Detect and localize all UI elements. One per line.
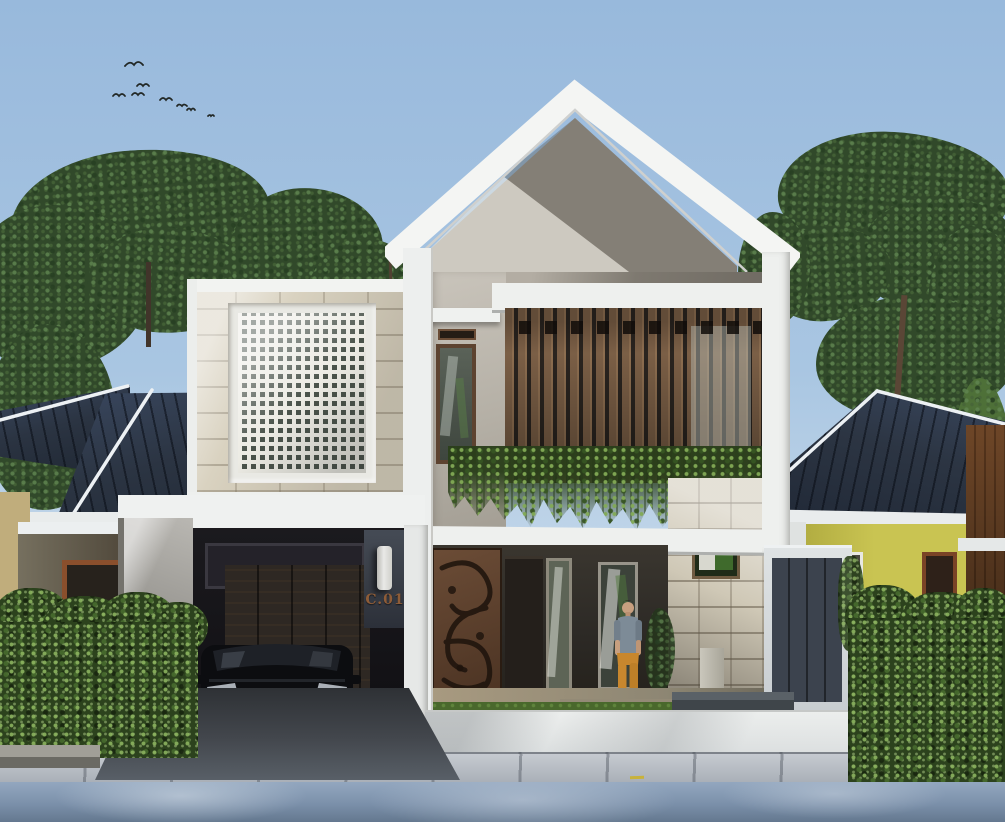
breeze-panel-light <box>238 313 366 473</box>
window-reflection <box>547 567 563 677</box>
address-pillar: C.01 <box>364 530 406 628</box>
transom-vent <box>438 329 476 340</box>
niche-leaf-detail <box>715 554 733 570</box>
hedge-right <box>848 618 1005 782</box>
breeze-box-left-edge <box>187 279 197 508</box>
slat-top-rail <box>505 321 768 334</box>
door-sidelight <box>546 558 572 706</box>
window-reflection <box>440 356 458 437</box>
hedge-curb-front <box>0 757 100 768</box>
breeze-box-cap <box>187 279 409 292</box>
wall-lamp <box>377 546 392 590</box>
hedge-left <box>0 622 198 758</box>
carved-flourish <box>434 550 500 704</box>
street <box>0 782 1005 822</box>
house-exterior-render: C.01 <box>0 0 1005 822</box>
side-gate-panel <box>772 558 842 702</box>
gable-roof <box>385 78 800 278</box>
house-frame-right <box>762 252 790 552</box>
address-label: C.01 <box>364 592 406 608</box>
fence-rail <box>958 538 1005 551</box>
window-reflection <box>455 378 468 438</box>
road-marking <box>630 776 644 779</box>
carved-door-panel <box>432 548 502 706</box>
